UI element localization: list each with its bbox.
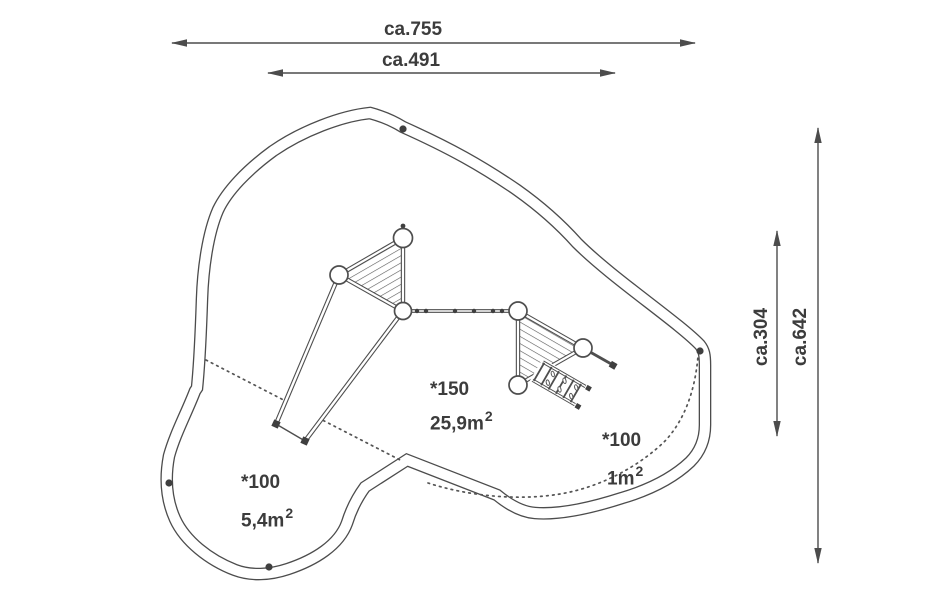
boundary-dot-left	[165, 479, 172, 486]
area-value-text: 1m	[607, 468, 634, 489]
area-value-text: 25,9m	[430, 413, 484, 434]
area-label-bottom-left-id: *100	[241, 473, 280, 493]
area-value-text: 5,4m	[241, 510, 284, 531]
area-label-center-value: 25,9m2	[430, 407, 493, 434]
area-label-center-id: *150	[430, 380, 469, 400]
area-label-right-value: 1m2	[607, 462, 643, 489]
dimension-label-right-outer: ca.642	[791, 308, 811, 366]
post-bottom	[395, 303, 412, 320]
area-label-right-id: *100	[602, 431, 641, 451]
boundary-dot-top	[399, 125, 406, 132]
post-left	[330, 266, 348, 284]
post-top-left	[509, 302, 527, 320]
area-value-superscript: 2	[635, 463, 643, 479]
dimension-label-top-inner: ca.491	[382, 51, 440, 71]
post-bottom-left	[509, 376, 527, 394]
dimension-label-right-inner: ca.304	[752, 308, 772, 366]
playground-plan-drawing: ca.755 ca.491 ca.642 ca.304 *150 25,9m2 …	[0, 0, 950, 600]
plan-linework	[0, 0, 950, 600]
boundary-dot-right	[696, 347, 703, 354]
post-top	[394, 229, 413, 248]
area-value-superscript: 2	[485, 408, 493, 424]
area-label-bottom-left-value: 5,4m2	[241, 504, 293, 531]
balance-rope	[403, 309, 518, 313]
dimension-label-top-outer: ca.755	[384, 20, 442, 40]
boundary-dot-bottom	[265, 563, 272, 570]
area-value-superscript: 2	[285, 505, 293, 521]
post-right	[574, 339, 592, 357]
